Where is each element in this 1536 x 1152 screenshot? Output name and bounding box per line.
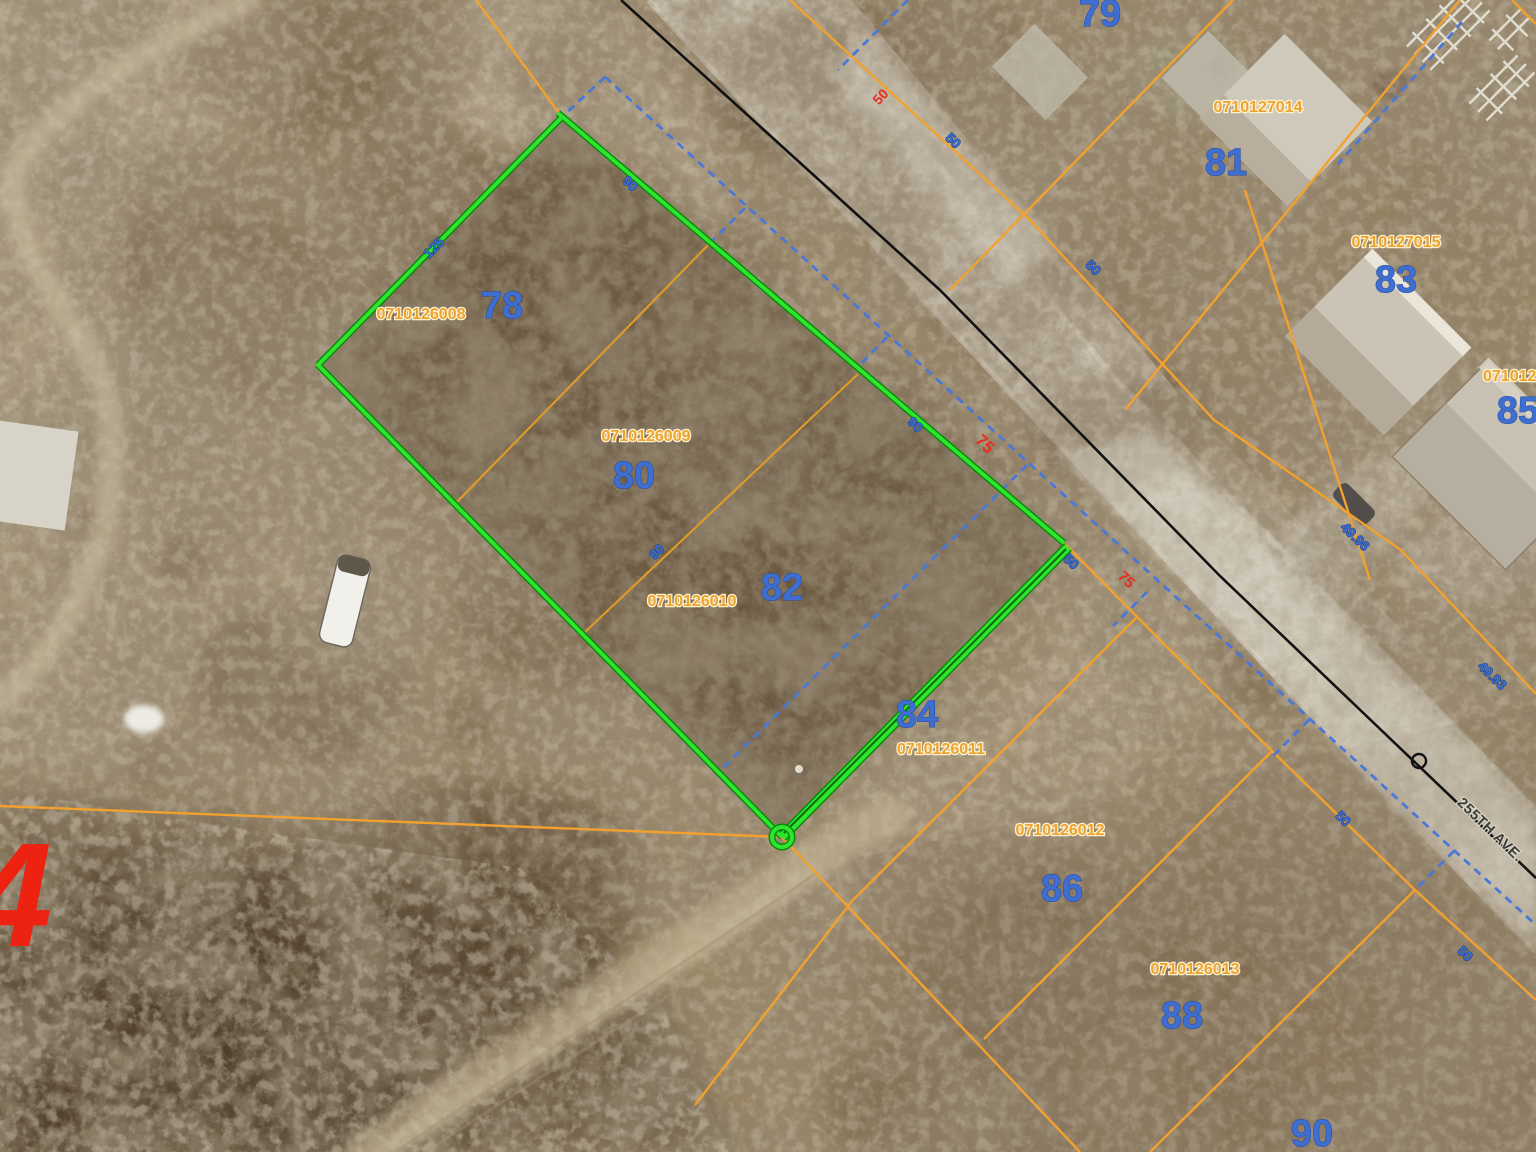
- svg-text:78: 78: [481, 285, 523, 327]
- svg-text:0710126009: 0710126009: [602, 428, 691, 445]
- svg-text:0710126010: 0710126010: [648, 593, 737, 610]
- svg-text:0710126012: 0710126012: [1016, 822, 1105, 839]
- svg-text:82: 82: [761, 567, 803, 609]
- svg-text:4: 4: [0, 813, 52, 978]
- svg-text:84: 84: [896, 694, 938, 736]
- svg-text:86: 86: [1041, 868, 1083, 910]
- svg-text:0710127014: 0710127014: [1214, 99, 1303, 116]
- svg-text:0710126013: 0710126013: [1151, 961, 1240, 978]
- svg-text:80: 80: [613, 455, 655, 497]
- svg-text:90: 90: [1291, 1113, 1333, 1152]
- svg-text:85: 85: [1497, 390, 1536, 432]
- svg-text:0710126011: 0710126011: [897, 741, 985, 758]
- svg-text:0710127015: 0710127015: [1352, 234, 1441, 251]
- svg-text:0710127016: 0710127016: [1483, 368, 1536, 385]
- svg-text:88: 88: [1161, 995, 1203, 1037]
- svg-text:83: 83: [1375, 259, 1417, 301]
- svg-text:0710126008: 0710126008: [377, 306, 466, 323]
- svg-text:81: 81: [1205, 142, 1247, 184]
- svg-text:79: 79: [1079, 0, 1121, 35]
